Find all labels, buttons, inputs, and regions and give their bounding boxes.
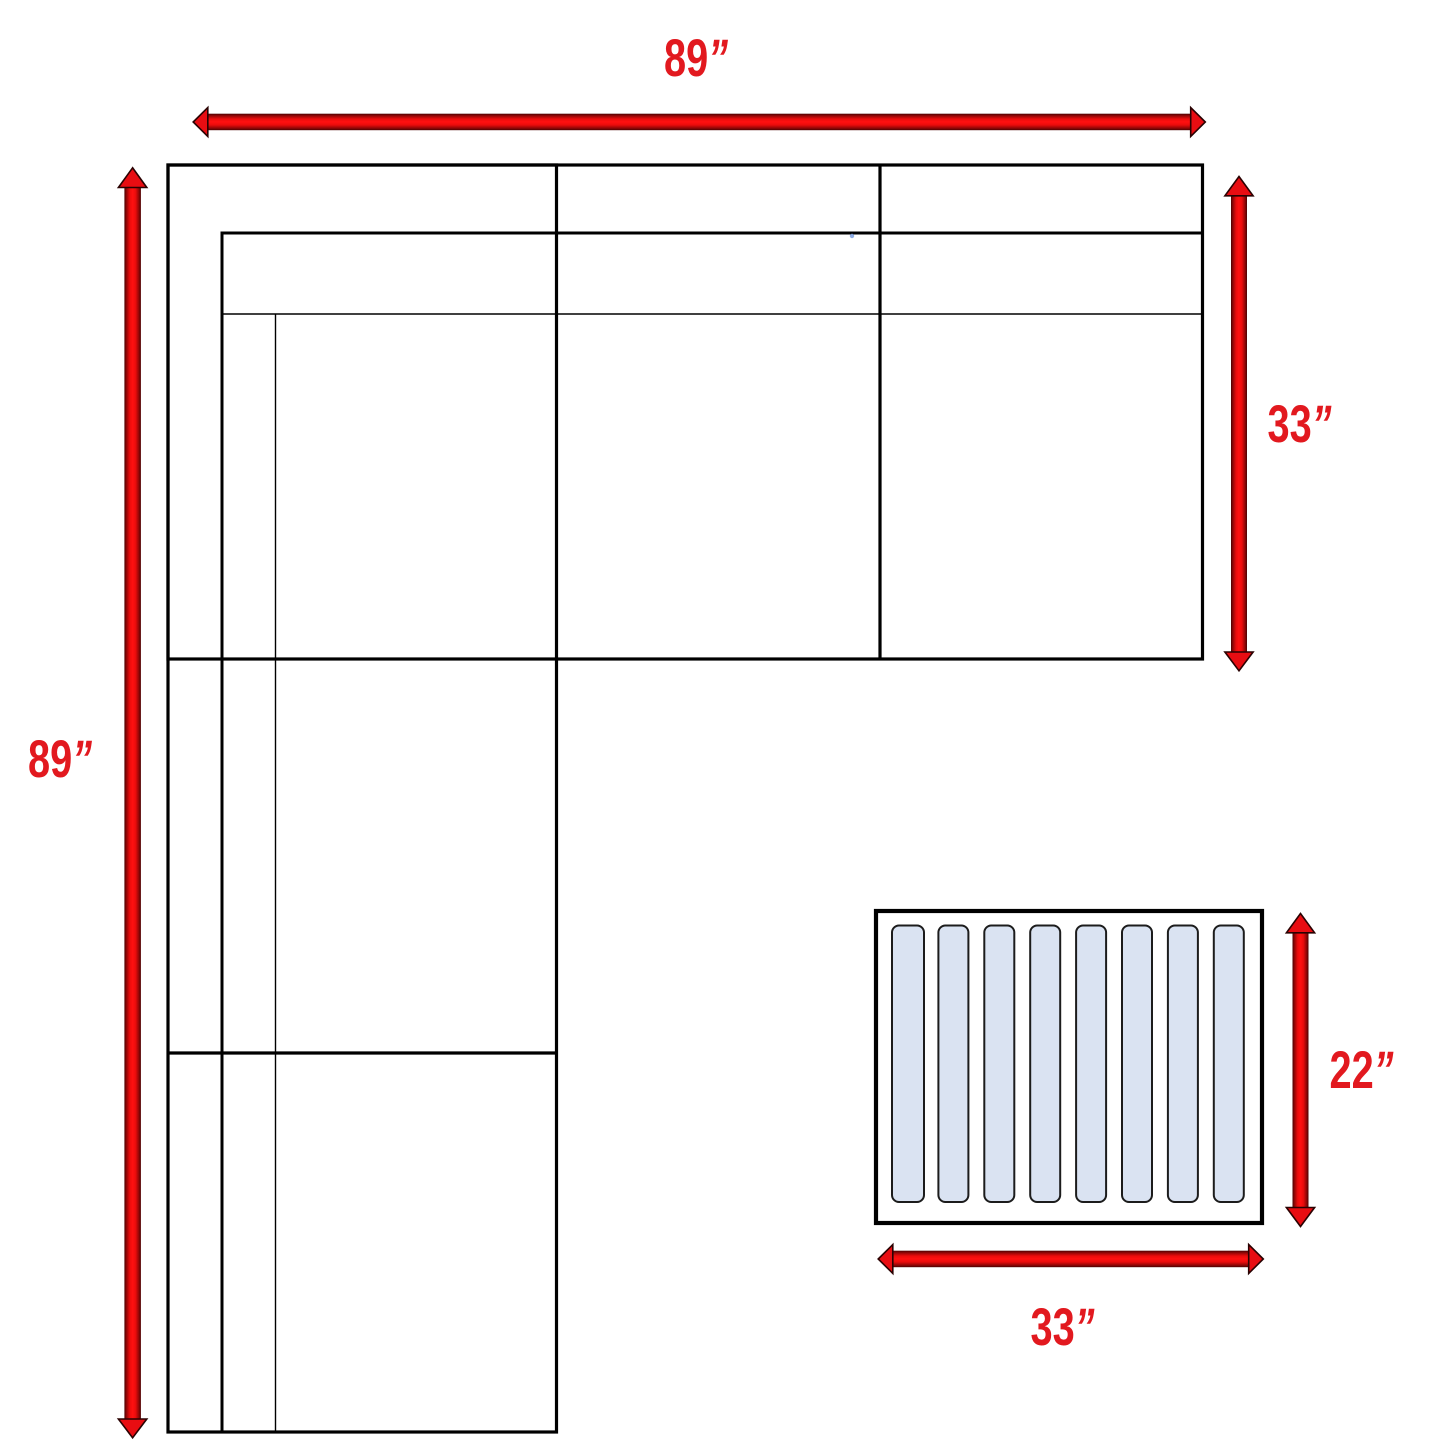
svg-text:33”: 33” <box>1267 394 1332 453</box>
svg-text:22”: 22” <box>1329 1040 1394 1099</box>
svg-text:33”: 33” <box>1030 1297 1095 1356</box>
svg-text:89”: 89” <box>28 729 93 788</box>
svg-text:89”: 89” <box>664 28 729 87</box>
